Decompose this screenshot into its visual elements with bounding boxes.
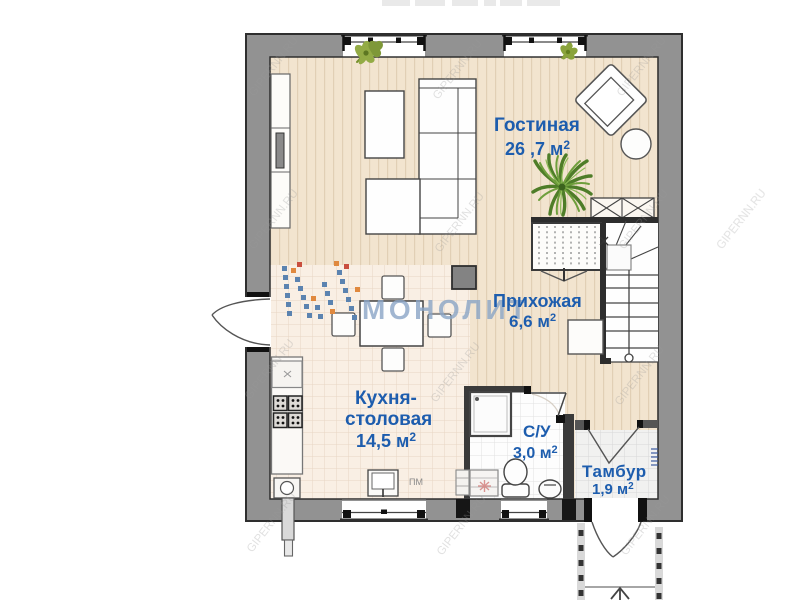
svg-text:ПМ: ПМ — [409, 477, 423, 487]
svg-text:Тамбур: Тамбур — [582, 462, 647, 481]
svg-text:14,5 м2: 14,5 м2 — [356, 430, 416, 451]
svg-text:Гостиная: Гостиная — [494, 115, 580, 136]
svg-text:столовая: столовая — [345, 409, 432, 430]
svg-text:С/У: С/У — [523, 422, 551, 441]
svg-text:3,0 м2: 3,0 м2 — [513, 444, 558, 462]
svg-text:1,9 м2: 1,9 м2 — [592, 481, 634, 498]
svg-text:Прихожая: Прихожая — [493, 291, 582, 311]
svg-text:6,6 м2: 6,6 м2 — [509, 312, 556, 331]
svg-text:26 ,7 м2: 26 ,7 м2 — [505, 138, 570, 159]
svg-text:Кухня-: Кухня- — [355, 388, 417, 409]
